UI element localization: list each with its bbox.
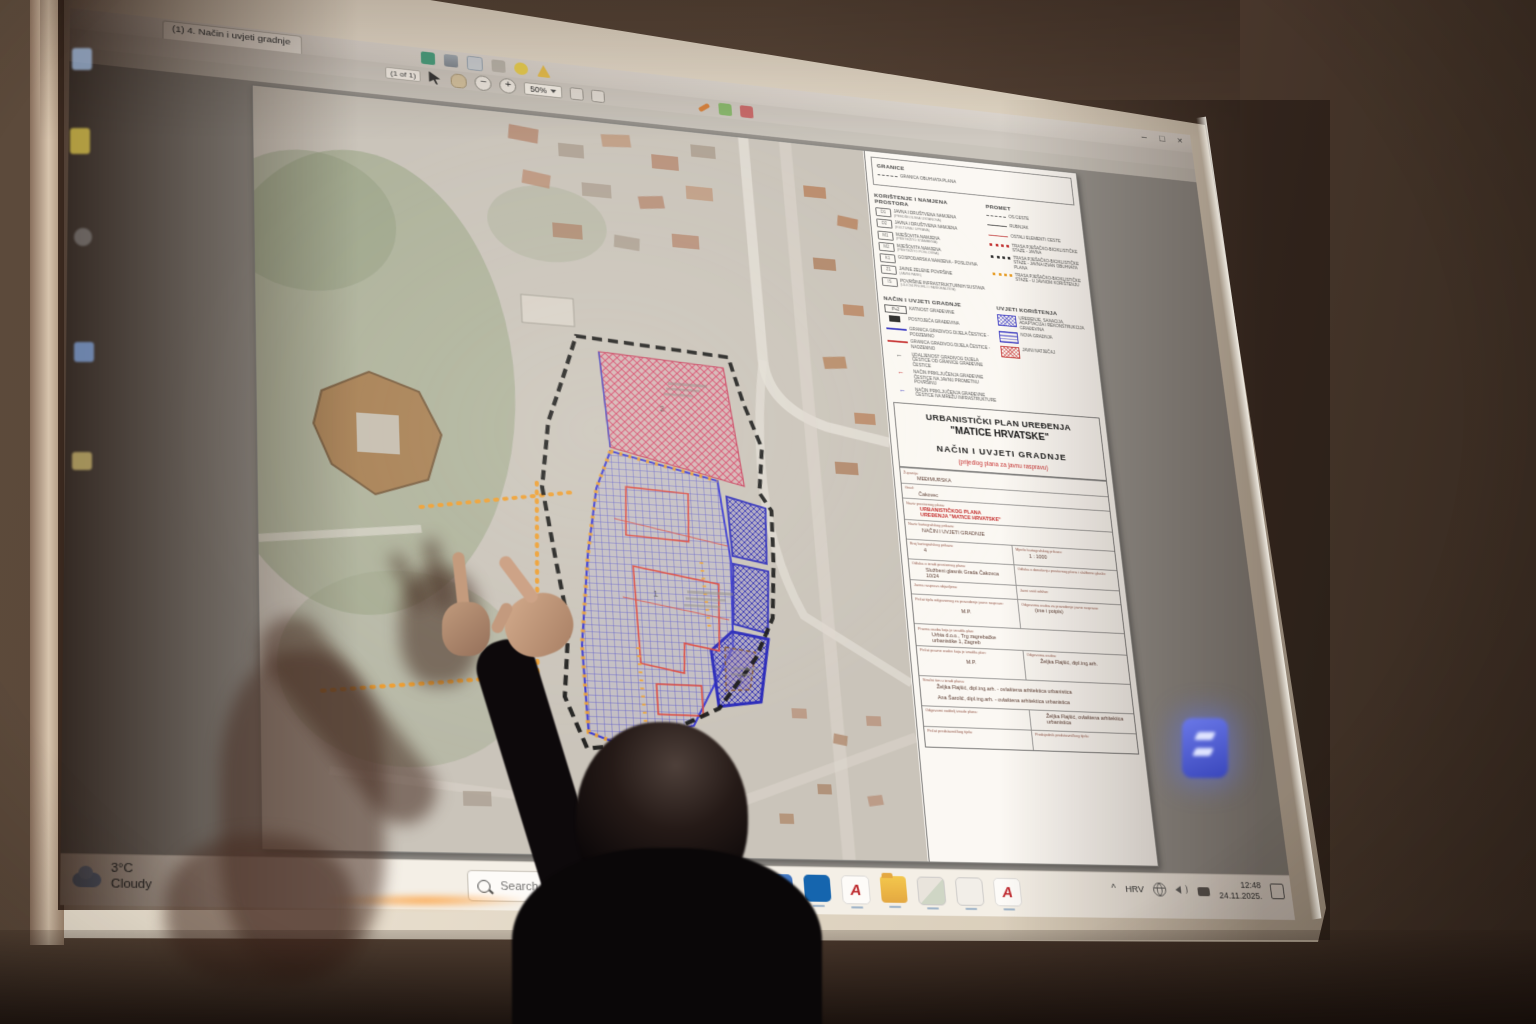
legend-symbol: ← [890,368,911,377]
photo-of-projection: (1) 4. Način i uvjeti gradnje –□× (1 of … [0,0,1536,1024]
map-canvas: 2 1 3 [253,85,929,861]
toolbar-icon[interactable] [514,62,528,76]
zoom-level-value: 50% [530,84,547,95]
room-shadow [0,930,1536,1024]
legend-promet-list: OS CESTE RUBNJAK [986,213,1084,289]
taskbar-app-icon[interactable] [727,873,756,901]
taskbar-search[interactable] [467,870,652,904]
window-control-button[interactable]: □ [1159,134,1166,144]
legend-symbol [987,222,1007,231]
plan-map: 2 1 3 [253,85,928,861]
network-icon[interactable] [1152,883,1167,897]
document-area: 2 1 3 GRANICE GRANICA OBUHVATA PLANA [61,61,1289,875]
zoom-in-button[interactable]: + [499,78,516,95]
page-indicator: (1 of 1) [385,67,421,82]
device-icon[interactable] [1197,887,1210,896]
window-controls: –□× [1141,132,1183,146]
taskbar-app-icon[interactable] [765,874,794,901]
namjena-code-swatch: M2 [878,242,894,252]
legend-gradnja-list: P+2 KATNOST GRAĐEVINE POSTOJEĆA GRAĐEVIN… [884,304,1001,404]
zoom-level-select[interactable]: 50% [524,82,563,98]
namjena-code-swatch: K1 [879,253,895,263]
window-control-button[interactable]: × [1177,136,1184,146]
taskbar-app-icon[interactable] [880,876,908,903]
taskbar-app-icon[interactable]: A [841,875,872,904]
legend-symbol [877,172,898,181]
fit-page-icon[interactable] [591,89,605,103]
toolbar-icon[interactable] [536,64,550,78]
namjena-code-swatch: D2 [876,219,892,229]
namjena-code-swatch: M1 [877,230,893,240]
screen-frame-left [30,0,64,945]
toolbar-icon[interactable] [698,103,711,112]
toolbar-icon[interactable] [491,59,505,73]
zone-purple-b [729,564,773,634]
zone-label: 2 [659,404,665,414]
volume-icon[interactable] [1175,883,1190,897]
legend-uvjeti-list: UREĐENJE, SANACIJA, ADAPTACIJA I REKONST… [997,314,1093,365]
legend-symbol [989,241,1009,250]
weather-temp: 3°C [111,862,133,876]
taskbar-app-icon[interactable] [916,876,946,905]
zone-label: 1 [653,589,659,599]
legend-symbol [992,270,1012,279]
legend-namjena-list: D1 JAVNA I DRUŠTVENA NAMJENA(PREDŠKOLSKA… [875,207,990,295]
namjena-code-swatch: D1 [875,207,891,217]
acrobat-window: (1) 4. Način i uvjeti gradnje –□× (1 of … [60,8,1295,920]
toolbar-icon[interactable] [718,103,732,116]
zone-label: 3 [737,673,743,683]
chevron-down-icon [551,89,557,93]
toolbar-icon[interactable] [740,105,754,118]
window-control-button[interactable]: – [1141,132,1147,142]
info-table: Županija: MEĐIMURSKA [899,467,1139,754]
select-tool-icon[interactable] [429,71,443,85]
legend-symbol [991,253,1011,262]
toolbar-icon[interactable] [467,56,483,72]
tray-expand-button[interactable]: ^ [1111,884,1117,895]
taskbar-apps: AA [727,873,1022,906]
search-icon [477,879,491,892]
namjena-code-swatch: IS [882,277,898,287]
clock[interactable]: 12:48 24.11.2025. [1217,880,1263,903]
notification-icon[interactable] [1270,884,1286,900]
weather-desc: Cloudy [111,877,152,891]
toolbar-icon[interactable] [444,54,458,68]
legend-swatch [1000,345,1020,358]
hand-tool-icon[interactable] [451,73,468,89]
legend-symbol [986,213,1006,222]
legend-symbol: P+2 [884,304,907,314]
legend-symbol: ← [892,386,913,395]
zoom-out-button[interactable]: − [475,75,492,92]
namjena-code-swatch: Z1 [881,265,897,275]
taskbar-app-icon[interactable] [803,875,831,902]
legend-symbol [885,315,906,324]
legend-symbol [887,337,908,346]
legend-symbol: ← [888,350,909,359]
fit-width-icon[interactable] [570,87,584,101]
language-indicator[interactable]: HRV [1125,884,1145,895]
legend-symbol [886,325,907,334]
weather-widget[interactable]: 3°C Cloudy [72,861,152,893]
taskbar-app-icon[interactable] [955,877,985,906]
cloud-icon [72,873,101,888]
toolbar-icon[interactable] [421,51,435,65]
legend-swatch [999,331,1019,344]
search-input[interactable] [498,878,611,895]
taskbar-app-icon[interactable]: A [993,878,1023,907]
pdf-page: 2 1 3 GRANICE GRANICA OBUHVATA PLANA [252,84,1159,866]
legend-swatch [997,314,1017,327]
tray-date: 24.11.2025. [1219,891,1263,901]
system-tray: ^ HRV 12:48 24.11.2025. [1110,878,1285,903]
tray-time: 12:48 [1240,880,1262,890]
legend-symbol [988,232,1008,241]
